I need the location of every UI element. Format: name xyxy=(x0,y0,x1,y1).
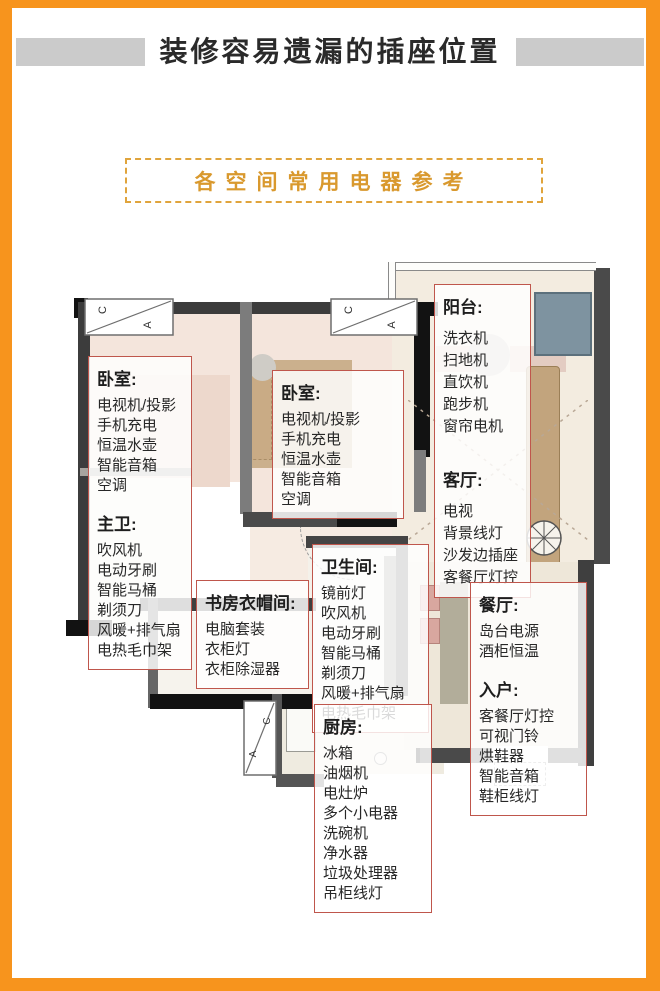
room-label-box-bedroom1-masterbath: 卧室: 电视机/投影 手机充电 恒温水壶 智能音箱 空调 主卫: 吹风机 电动牙… xyxy=(88,356,192,670)
appliance-item: 可视门铃 xyxy=(479,727,578,747)
appliance-item: 衣柜除湿器 xyxy=(205,660,300,680)
subtitle-box: 各空间常用电器参考 xyxy=(125,158,543,203)
appliance-item: 恒温水壶 xyxy=(281,450,395,470)
svg-text:A: A xyxy=(386,321,398,329)
room-name: 卫生间: xyxy=(321,553,420,578)
room-name: 卧室: xyxy=(281,379,395,404)
appliance-item: 电视 xyxy=(443,501,522,523)
appliance-item: 跑步机 xyxy=(443,394,522,416)
appliance-item: 烘鞋器 xyxy=(479,747,578,767)
wall xyxy=(150,694,312,709)
room-group: 餐厅: 岛台电源 酒柜恒温 xyxy=(479,591,578,662)
wall xyxy=(240,302,252,514)
room-name: 客厅: xyxy=(443,466,522,491)
room-group: 卧室: 电视机/投影 手机充电 恒温水壶 智能音箱 空调 xyxy=(97,365,183,496)
room-group: 卧室: 电视机/投影 手机充电 恒温水壶 智能音箱 空调 xyxy=(281,379,395,510)
appliance-item: 窗帘电机 xyxy=(443,416,522,438)
appliance-item: 吊柜线灯 xyxy=(323,884,423,904)
window-symbol: A C xyxy=(243,700,277,776)
room-name: 入户: xyxy=(479,676,578,701)
room-label-box-bedroom2: 卧室: 电视机/投影 手机充电 恒温水壶 智能音箱 空调 xyxy=(272,370,404,519)
room-group: 书房衣帽间: 电脑套装 衣柜灯 衣柜除湿器 xyxy=(205,589,300,680)
appliance-item: 洗碗机 xyxy=(323,824,423,844)
svg-text:C: C xyxy=(343,306,355,314)
appliance-item: 衣柜灯 xyxy=(205,640,300,660)
infographic-page: 装修容易遗漏的插座位置 各空间常用电器参考 xyxy=(0,0,660,991)
appliance-item: 智能马桶 xyxy=(97,581,183,601)
room-name: 阳台: xyxy=(443,293,522,318)
window-symbol: C A xyxy=(330,298,418,336)
appliance-item: 恒温水壶 xyxy=(97,436,183,456)
appliance-item: 智能音箱 xyxy=(97,456,183,476)
appliance-item: 油烟机 xyxy=(323,764,423,784)
room-name: 厨房: xyxy=(323,713,423,738)
appliance-item: 吹风机 xyxy=(321,604,420,624)
appliance-item: 镜前灯 xyxy=(321,584,420,604)
appliance-item: 扫地机 xyxy=(443,350,522,372)
appliance-item: 空调 xyxy=(97,476,183,496)
room-name: 书房衣帽间: xyxy=(205,589,300,614)
appliance-item: 智能音箱 xyxy=(479,767,578,787)
appliance-item: 冰箱 xyxy=(323,744,423,764)
appliance-item: 剃须刀 xyxy=(97,601,183,621)
appliance-item: 电视机/投影 xyxy=(281,410,395,430)
room-group: 卫生间: 镜前灯 吹风机 电动牙刷 智能马桶 剃须刀 风暖+排气扇 电热毛巾架 xyxy=(321,553,420,724)
room-group: 客厅: 电视 背景线灯 沙发边插座 客餐厅灯控 xyxy=(443,466,522,589)
room-group: 阳台: 洗衣机 扫地机 直饮机 跑步机 窗帘电机 xyxy=(443,293,522,438)
room-group: 厨房: 冰箱 油烟机 电灶炉 多个小电器 洗碗机 净水器 垃圾处理器 吊柜线灯 xyxy=(323,713,423,904)
appliance-item: 岛台电源 xyxy=(479,622,578,642)
wall xyxy=(594,268,610,564)
appliance-item: 洗衣机 xyxy=(443,328,522,350)
appliance-item: 电动牙刷 xyxy=(321,624,420,644)
appliance-item: 客餐厅灯控 xyxy=(479,707,578,727)
balcony-glazing xyxy=(388,262,596,271)
svg-text:C: C xyxy=(97,306,109,314)
room-group: 主卫: 吹风机 电动牙刷 智能马桶 剃须刀 风暖+排气扇 电热毛巾架 xyxy=(97,510,183,661)
appliance-item: 垃圾处理器 xyxy=(323,864,423,884)
washing-machine-icon xyxy=(534,292,592,356)
appliance-item: 电热毛巾架 xyxy=(97,641,183,661)
appliance-item: 多个小电器 xyxy=(323,804,423,824)
appliance-item: 风暖+排气扇 xyxy=(321,684,420,704)
room-name: 主卫: xyxy=(97,510,183,535)
appliance-item: 空调 xyxy=(281,490,395,510)
room-label-box-kitchen: 厨房: 冰箱 油烟机 电灶炉 多个小电器 洗碗机 净水器 垃圾处理器 吊柜线灯 xyxy=(314,704,432,913)
appliance-item: 智能音箱 xyxy=(281,470,395,490)
svg-text:A: A xyxy=(142,321,154,329)
appliance-item: 手机充电 xyxy=(97,416,183,436)
appliance-item: 吹风机 xyxy=(97,541,183,561)
appliance-item: 电视机/投影 xyxy=(97,396,183,416)
appliance-item: 风暖+排气扇 xyxy=(97,621,183,641)
appliance-item: 鞋柜线灯 xyxy=(479,787,578,807)
appliance-item: 电动牙刷 xyxy=(97,561,183,581)
appliance-item: 背景线灯 xyxy=(443,523,522,545)
svg-text:C: C xyxy=(262,717,273,724)
appliance-item: 剃须刀 xyxy=(321,664,420,684)
room-label-box-study: 书房衣帽间: 电脑套装 衣柜灯 衣柜除湿器 xyxy=(196,580,309,689)
appliance-item: 沙发边插座 xyxy=(443,545,522,567)
svg-text:A: A xyxy=(248,750,259,757)
appliance-item: 净水器 xyxy=(323,844,423,864)
room-group: 入户: 客餐厅灯控 可视门铃 烘鞋器 智能音箱 鞋柜线灯 xyxy=(479,676,578,807)
dining-island-icon xyxy=(440,582,468,704)
appliance-item: 智能马桶 xyxy=(321,644,420,664)
appliance-item: 电灶炉 xyxy=(323,784,423,804)
subtitle-text: 各空间常用电器参考 xyxy=(195,166,474,196)
room-name: 餐厅: xyxy=(479,591,578,616)
room-label-box-balcony-living: 阳台: 洗衣机 扫地机 直饮机 跑步机 窗帘电机 客厅: 电视 背景线灯 沙发边… xyxy=(434,284,531,598)
appliance-item: 电脑套装 xyxy=(205,620,300,640)
appliance-item: 直饮机 xyxy=(443,372,522,394)
appliance-item: 酒柜恒温 xyxy=(479,642,578,662)
page-title: 装修容易遗漏的插座位置 xyxy=(0,30,660,70)
room-label-box-dining-entry: 餐厅: 岛台电源 酒柜恒温 入户: 客餐厅灯控 可视门铃 烘鞋器 智能音箱 鞋柜… xyxy=(470,582,587,816)
room-name: 卧室: xyxy=(97,365,183,390)
window-symbol: C A xyxy=(84,298,174,336)
appliance-item: 手机充电 xyxy=(281,430,395,450)
